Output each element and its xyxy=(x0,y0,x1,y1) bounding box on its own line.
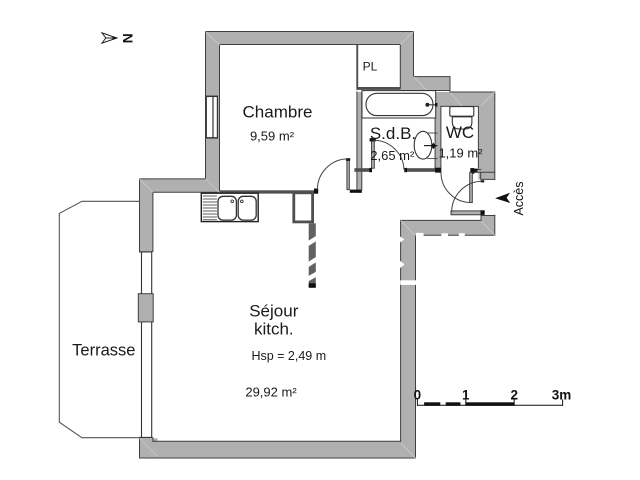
svg-text:29,92 m²: 29,92 m² xyxy=(245,385,297,400)
svg-text:1: 1 xyxy=(462,388,470,403)
svg-text:Séjour: Séjour xyxy=(249,302,298,321)
svg-text:Chambre: Chambre xyxy=(243,103,313,122)
svg-text:1,19 m²: 1,19 m² xyxy=(438,145,483,160)
svg-text:2: 2 xyxy=(510,388,518,403)
svg-text:S.d.B.: S.d.B. xyxy=(370,124,416,143)
svg-text:Terrasse: Terrasse xyxy=(72,342,135,360)
svg-text:0: 0 xyxy=(414,388,422,403)
svg-text:kitch.: kitch. xyxy=(254,320,294,339)
svg-text:Hsp = 2,49 m: Hsp = 2,49 m xyxy=(251,349,326,363)
svg-text:9,59 m²: 9,59 m² xyxy=(250,128,295,143)
svg-text:2,65 m²: 2,65 m² xyxy=(370,148,415,163)
svg-text:3m: 3m xyxy=(552,388,572,403)
svg-text:WC: WC xyxy=(446,123,474,142)
svg-text:N: N xyxy=(120,33,135,43)
svg-text:PL: PL xyxy=(363,59,378,73)
svg-text:Accès: Accès xyxy=(512,181,526,215)
